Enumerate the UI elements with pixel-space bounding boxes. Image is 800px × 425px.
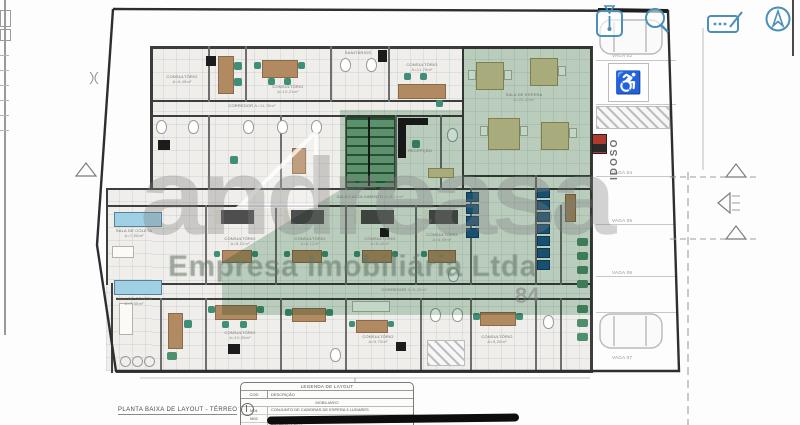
legend-row-code: M02: [241, 415, 268, 422]
legend-row: M01 CONJUNTO DE CADEIRAS DE ESPERA 3 LUG…: [241, 407, 413, 415]
north-symbol: [241, 403, 254, 416]
legend-col-cod: COD: [241, 391, 268, 398]
marker-icon[interactable]: [594, 4, 626, 38]
site-linework: [0, 0, 800, 425]
legend-row-desc: CONJUNTO DE CADEIRAS DE ESPERA 3 LUGARES: [268, 407, 413, 414]
north-compass-icon[interactable]: [764, 5, 792, 33]
note-edit-icon[interactable]: [706, 10, 746, 36]
legend-section: MOBILIÁRIO: [241, 399, 413, 407]
zoom-icon[interactable]: [642, 6, 672, 36]
legend-title: LEGENDA DE LAYOUT: [241, 383, 413, 391]
legend-col-desc: DESCRIÇÃO: [268, 391, 413, 398]
drawing-title: PLANTA BAIXA DE LAYOUT - TÉRREO: [118, 407, 237, 415]
floorplan-viewer: CONSULTÓRIOA=9,45m² CONSULTÓRIOA=10,21m²…: [0, 0, 800, 425]
